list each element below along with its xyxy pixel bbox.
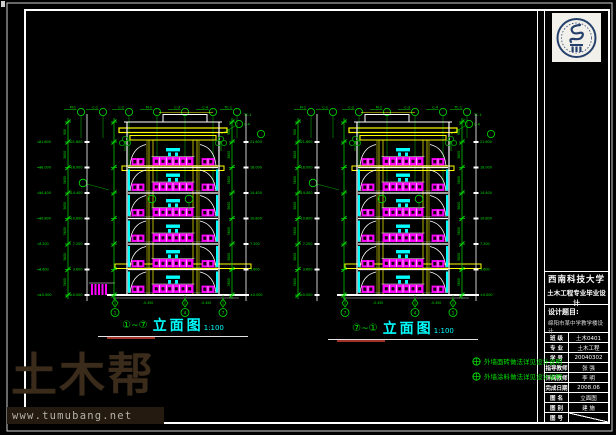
svg-text:3600: 3600 [227,202,231,210]
cad-sheet: M-1C-1C-2M-2C-3C-4TC-1C-4TC-190036003600… [0,0,616,435]
tb-row-value: 土木0401 [569,333,608,343]
svg-text:3600: 3600 [227,151,231,159]
watermark-brand: 土木帮 [11,352,155,398]
svg-text:TC-1: TC-1 [473,113,482,117]
svg-text:3600: 3600 [293,176,297,184]
svg-text:M-1: M-1 [300,106,306,110]
svg-text:7.200: 7.200 [480,242,490,246]
svg-text:7.200: 7.200 [303,242,313,246]
title-underline-red [337,340,385,342]
svg-text:3600: 3600 [293,227,297,235]
svg-text:10.800: 10.800 [71,217,83,221]
elevation-title-left: ①~⑦ 立面图1:100 [98,315,248,337]
svg-text:14.400: 14.400 [250,191,262,195]
svg-text:C-4: C-4 [474,123,480,127]
svg-text:3600: 3600 [293,151,297,159]
svg-text:TC-1: TC-1 [453,106,462,110]
note-circle-icon [472,372,481,381]
svg-text:21.600: 21.600 [71,140,83,144]
tb-row-label: 图 别 [545,403,569,413]
svg-text:TC-1: TC-1 [243,113,252,117]
svg-text:C-1: C-1 [322,106,328,110]
tb-row-value: 20040302 [569,353,608,363]
svg-text:900: 900 [63,129,67,135]
university-seal-logo [552,13,601,62]
seal-icon [552,13,601,62]
svg-text:M-2: M-2 [376,106,382,110]
svg-text:-0.450: -0.450 [201,301,211,305]
svg-text:3600: 3600 [457,202,461,210]
drawing-scale: 1:100 [434,327,454,335]
legend-note-2: 外墙涂料做法详见设计说明 [472,371,562,381]
svg-text:3600: 3600 [227,176,231,184]
svg-text:900: 900 [457,129,461,135]
tb-row-value-diagonal [569,413,608,423]
svg-text:7.200: 7.200 [73,242,83,246]
svg-text:-0.450: -0.450 [373,301,383,305]
tb-row-label: 图 号 [545,413,569,423]
axis-bubble-to: ① [369,323,378,334]
svg-text:±0.000: ±0.000 [70,293,83,297]
svg-text:TC-1: TC-1 [223,106,232,110]
svg-text:1: 1 [452,311,455,317]
elevation-drawing-right: M-1C-1C-2M-2C-3C-4TC-1C-4TC-190036003600… [293,106,494,317]
svg-text:3600: 3600 [457,151,461,159]
tb-row-label: 班 级 [545,333,569,343]
svg-text:C-4: C-4 [202,106,208,110]
svg-text:M-2: M-2 [146,106,152,110]
svg-text:10.800: 10.800 [480,217,492,221]
svg-text:4: 4 [414,311,417,317]
svg-text:±0.000: ±0.000 [250,293,263,297]
svg-text:C-3: C-3 [404,106,410,110]
drawing-name: 立面图 [153,318,204,334]
svg-text:C-2: C-2 [118,106,124,110]
subject-label: 设计题目: [548,307,579,317]
watermark-url: www.tumubang.net [7,410,132,422]
drawing-name: 立面图 [383,321,434,337]
svg-text:21.600: 21.600 [301,140,313,144]
svg-text:14.400: 14.400 [480,191,492,195]
svg-text:18.000: 18.000 [250,166,262,170]
svg-text:C-4: C-4 [432,106,438,110]
tb-row-label: 图 名 [545,393,569,403]
svg-text:C-4: C-4 [244,123,250,127]
tb-row-value: 张 强 [569,363,608,373]
svg-text:3600: 3600 [63,202,67,210]
tb-row-value: 立面图 [569,393,608,403]
svg-text:3.600: 3.600 [73,268,83,272]
svg-text:3600: 3600 [293,202,297,210]
svg-text:10.800: 10.800 [301,217,313,221]
svg-text:3600: 3600 [63,253,67,261]
svg-text:3600: 3600 [227,253,231,261]
tb-row-value: 建 施 [569,403,608,413]
tb-row-label: 专 业 [545,343,569,353]
svg-text:3600: 3600 [227,227,231,235]
svg-text:3.600: 3.600 [250,268,260,272]
program-name: 土木工程专业毕业设计 [545,287,608,307]
svg-text:10.800: 10.800 [250,217,262,221]
svg-text:21.600: 21.600 [480,140,492,144]
svg-text:C-3: C-3 [174,106,180,110]
svg-text:3600: 3600 [63,278,67,286]
svg-text:3600: 3600 [457,253,461,261]
divider [544,271,609,272]
svg-text:M-1: M-1 [70,106,76,110]
svg-text:900: 900 [227,129,231,135]
svg-text:7: 7 [344,311,347,317]
svg-text:14.400: 14.400 [301,191,313,195]
elevation-drawing-left: M-1C-1C-2M-2C-3C-4TC-1C-4TC-190036003600… [37,106,265,317]
tb-row-value: 2008.06 [569,383,608,393]
svg-text:18.000: 18.000 [301,166,313,170]
svg-text:3.600: 3.600 [480,268,490,272]
svg-text:3600: 3600 [293,278,297,286]
svg-text:14.400: 14.400 [71,191,83,195]
svg-text:3.600: 3.600 [303,268,313,272]
watermark-url-bar: www.tumubang.net [7,407,164,424]
svg-text:-0.450: -0.450 [143,301,153,305]
svg-text:3600: 3600 [63,151,67,159]
svg-text:3600: 3600 [457,176,461,184]
svg-text:3600: 3600 [63,227,67,235]
svg-text:18.000: 18.000 [71,166,83,170]
svg-text:±0.000: ±0.000 [480,293,493,297]
svg-text:-0.450: -0.450 [431,301,441,305]
legend-note-1: 外墙面砖做法详见设计说明 [472,356,562,366]
axis-bubble-from: ⑦ [352,323,361,334]
svg-text:18.000: 18.000 [480,166,492,170]
svg-text:3600: 3600 [227,278,231,286]
svg-text:900: 900 [293,129,297,135]
tb-row-value: 李 明 [569,373,608,383]
tb-row-label: 完成日期 [545,383,569,393]
svg-text:3600: 3600 [63,176,67,184]
axis-bubble-to: ⑦ [139,320,148,331]
elevation-title-right: ⑦~① 立面图1:100 [328,318,478,340]
university-name: 西南科技大学 [545,273,608,285]
svg-text:3600: 3600 [457,227,461,235]
tb-row-value: 土木工程 [569,343,608,353]
svg-text:C-2: C-2 [348,106,354,110]
svg-text:3600: 3600 [293,253,297,261]
title-underline-red [107,337,155,339]
svg-text:21.600: 21.600 [250,140,262,144]
svg-text:±0.000: ±0.000 [300,293,313,297]
axis-bubble-from: ① [122,320,131,331]
svg-text:7.200: 7.200 [250,242,260,246]
svg-text:3600: 3600 [457,278,461,286]
drawing-scale: 1:100 [204,324,224,332]
svg-text:C-1: C-1 [92,106,98,110]
note-circle-icon [472,357,481,366]
